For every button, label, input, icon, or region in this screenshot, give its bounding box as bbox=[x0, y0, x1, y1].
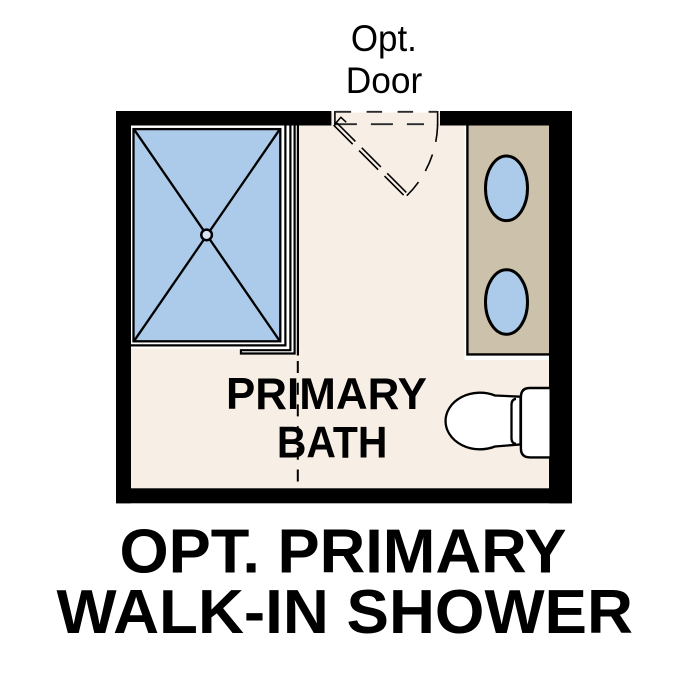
svg-text:BATH: BATH bbox=[277, 419, 388, 468]
svg-text:Door: Door bbox=[346, 59, 423, 101]
svg-text:WALK-IN SHOWER: WALK-IN SHOWER bbox=[57, 577, 634, 647]
svg-text:Opt.: Opt. bbox=[351, 17, 417, 59]
svg-text:PRIMARY: PRIMARY bbox=[226, 370, 427, 419]
